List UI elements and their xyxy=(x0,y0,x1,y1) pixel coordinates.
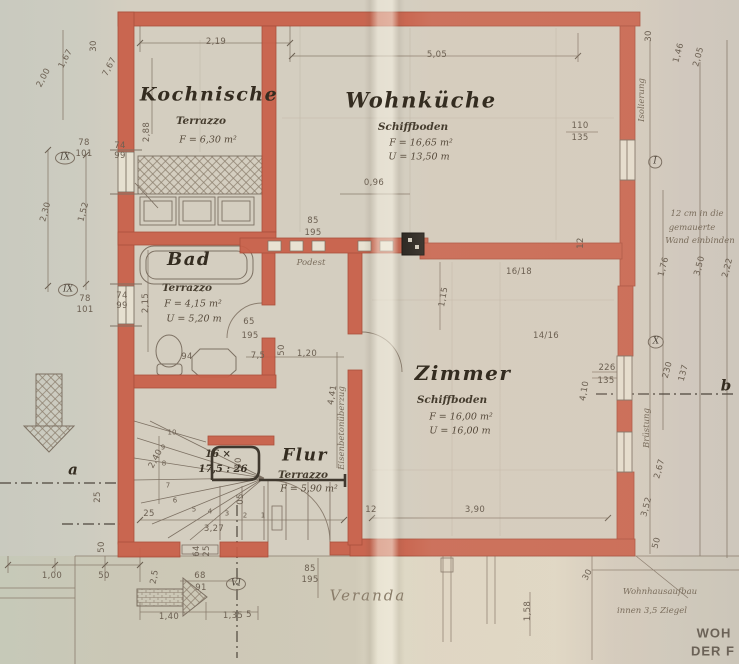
dimension-label: 2,05 xyxy=(692,46,705,68)
step-number: 3 xyxy=(225,511,229,518)
dimension-label: 2,15 xyxy=(142,293,151,313)
dimension-label: 05 xyxy=(237,493,246,504)
note-label: Wand einbinden xyxy=(665,237,735,246)
axis-letter: a xyxy=(68,463,78,478)
dimension-label: 30 xyxy=(645,30,654,41)
print-label: DER F xyxy=(691,645,735,658)
dimension-label: 1,52 xyxy=(77,201,90,223)
dimension-label: 94 xyxy=(181,353,192,362)
perimeter-label: U = 16,00 m xyxy=(429,426,490,436)
axis-marker: I xyxy=(648,156,662,169)
step-number: 8 xyxy=(162,461,166,468)
floor-label: Terrazzo xyxy=(176,116,226,127)
dimension-label: 226 xyxy=(598,364,615,373)
dimension-label: 78 xyxy=(78,139,89,148)
step-number: 6 xyxy=(173,498,177,505)
dimension-label: 25 xyxy=(94,491,103,502)
dimension-label: 1,76 xyxy=(657,256,670,278)
note-label: Podest xyxy=(297,259,326,268)
dimension-label: 1,46 xyxy=(672,42,685,64)
dimension-label: 5 xyxy=(246,611,252,620)
room-label: Zimmer xyxy=(415,363,512,383)
dimension-label: 135 xyxy=(597,377,614,386)
dimension-label: 14/16 xyxy=(533,332,559,341)
dimension-label: 3,27 xyxy=(204,525,224,534)
dimension-label: 68 xyxy=(194,572,205,581)
floor-plan-sheet: KochnischeTerrazzoF = 6,30 m²WohnkücheSc… xyxy=(0,0,739,664)
dimension-label: 91 xyxy=(195,584,206,593)
dimension-label: 2,00 xyxy=(36,67,53,89)
note-label: 12 cm in die xyxy=(670,210,723,219)
note-label: gemauerte xyxy=(669,224,716,233)
dimension-label: 30 xyxy=(90,40,99,51)
print-label: WOH xyxy=(697,627,732,640)
axis-marker: X xyxy=(648,336,664,349)
dimension-label: 74 xyxy=(114,142,125,151)
note-label: Brüstung xyxy=(643,408,652,448)
dimension-label: 25 xyxy=(143,510,154,519)
dimension-label: 2,67 xyxy=(653,458,666,480)
dimension-label: 195 xyxy=(241,332,258,341)
dimension-label: 101 xyxy=(75,150,92,159)
floor-label: Schiffboden xyxy=(378,122,448,133)
dimension-label: 1,35 xyxy=(223,612,243,621)
dimension-label: 230 xyxy=(662,361,675,380)
dimension-label: 2,19 xyxy=(206,38,226,47)
area-label: F = 5,90 m² xyxy=(280,484,338,494)
dimension-label: 3,90 xyxy=(465,506,485,515)
dimension-label: 1,20 xyxy=(297,350,317,359)
dimension-label: 110 xyxy=(571,122,588,131)
dimension-label: 101 xyxy=(76,306,93,315)
axis-marker: IX xyxy=(58,284,78,297)
room-label: Flur xyxy=(282,448,328,465)
dimension-label: 50 xyxy=(651,536,662,549)
dimension-label: 1,00 xyxy=(42,572,62,581)
note-label: Isolierung xyxy=(638,78,647,122)
dimension-label: 99 xyxy=(116,302,127,311)
dimension-label: 4,10 xyxy=(579,380,591,401)
dimension-label: 25 xyxy=(203,545,212,556)
dimension-label: 16/18 xyxy=(506,268,532,277)
room-label: Bad xyxy=(167,251,211,269)
dimension-label: 99 xyxy=(114,152,125,161)
dimension-label: 1,40 xyxy=(159,613,179,622)
dimension-label: 30 xyxy=(582,568,595,582)
room-label: Wohnküche xyxy=(345,90,496,111)
dimension-label: 3,52 xyxy=(640,496,653,518)
dimension-label: 12 xyxy=(577,237,586,248)
dimension-label: 85 xyxy=(307,217,318,226)
dimension-label: 1,58 xyxy=(524,601,533,621)
dimension-label: 195 xyxy=(301,576,318,585)
dimension-label: 5,05 xyxy=(427,51,447,60)
dimension-label: 50 xyxy=(235,457,244,468)
area-label: F = 6,30 m² xyxy=(179,135,237,145)
step-number: 9 xyxy=(161,445,165,452)
dimension-label: 0,96 xyxy=(364,179,384,188)
area-label: F = 16,65 m² xyxy=(389,138,453,148)
axis-letter: b xyxy=(721,379,732,394)
dimension-label: 1,15 xyxy=(438,286,450,307)
step-number: 7 xyxy=(166,483,170,490)
step-number: 1 xyxy=(261,513,265,520)
room-label: Kochnische xyxy=(140,86,278,105)
dimension-label: 137 xyxy=(678,364,691,383)
floor-label: Terrazzo xyxy=(278,470,328,481)
step-number: 5 xyxy=(192,507,196,514)
dimension-label: 50 xyxy=(98,541,107,552)
axis-marker: IX xyxy=(55,152,75,165)
dimension-label: 7,5 xyxy=(251,352,265,361)
dimension-label: 64 xyxy=(193,545,202,556)
dimension-label: 2,88 xyxy=(143,122,152,142)
note-label: Wohnhausaufbau xyxy=(623,588,697,597)
dimension-label: 50 xyxy=(98,572,109,581)
dimension-label: 74 xyxy=(116,292,127,301)
dimension-label: 50 xyxy=(278,344,287,355)
dimension-label: 65 xyxy=(243,318,254,327)
perimeter-label: U = 13,50 m xyxy=(388,152,449,162)
dimension-label: 85 xyxy=(304,565,315,574)
axis-marker: VI xyxy=(226,578,246,591)
perimeter-label: U = 5,20 m xyxy=(166,314,221,324)
floor-label: Schiffboden xyxy=(417,395,487,406)
note-label: Eisenbetonüberzug xyxy=(338,386,347,470)
area-label: F = 4,15 m² xyxy=(164,299,222,309)
note-label: innen 3,5 Ziegel xyxy=(617,607,687,616)
step-number: 4 xyxy=(208,509,212,516)
dimension-label: 135 xyxy=(571,134,588,143)
dimension-label: 7,67 xyxy=(102,56,119,78)
step-number: 10 xyxy=(168,430,177,437)
dimension-label: 12 xyxy=(365,506,376,515)
floor-label: Terrazzo xyxy=(162,283,212,294)
dimension-label: 2,30 xyxy=(39,201,52,223)
dimension-label: 1,67 xyxy=(58,48,75,70)
annotation-layer: KochnischeTerrazzoF = 6,30 m²WohnkücheSc… xyxy=(0,0,739,664)
dimension-label: 2,5 xyxy=(150,569,161,585)
room-label: Veranda xyxy=(330,589,407,604)
stair-count-label: 16 × xyxy=(205,450,231,460)
dimension-label: 195 xyxy=(304,229,321,238)
area-label: F = 16,00 m² xyxy=(429,412,493,422)
step-number: 2 xyxy=(243,513,247,520)
dimension-label: 2,22 xyxy=(721,257,734,279)
dimension-label: 3,50 xyxy=(693,255,706,277)
dimension-label: 78 xyxy=(79,295,90,304)
